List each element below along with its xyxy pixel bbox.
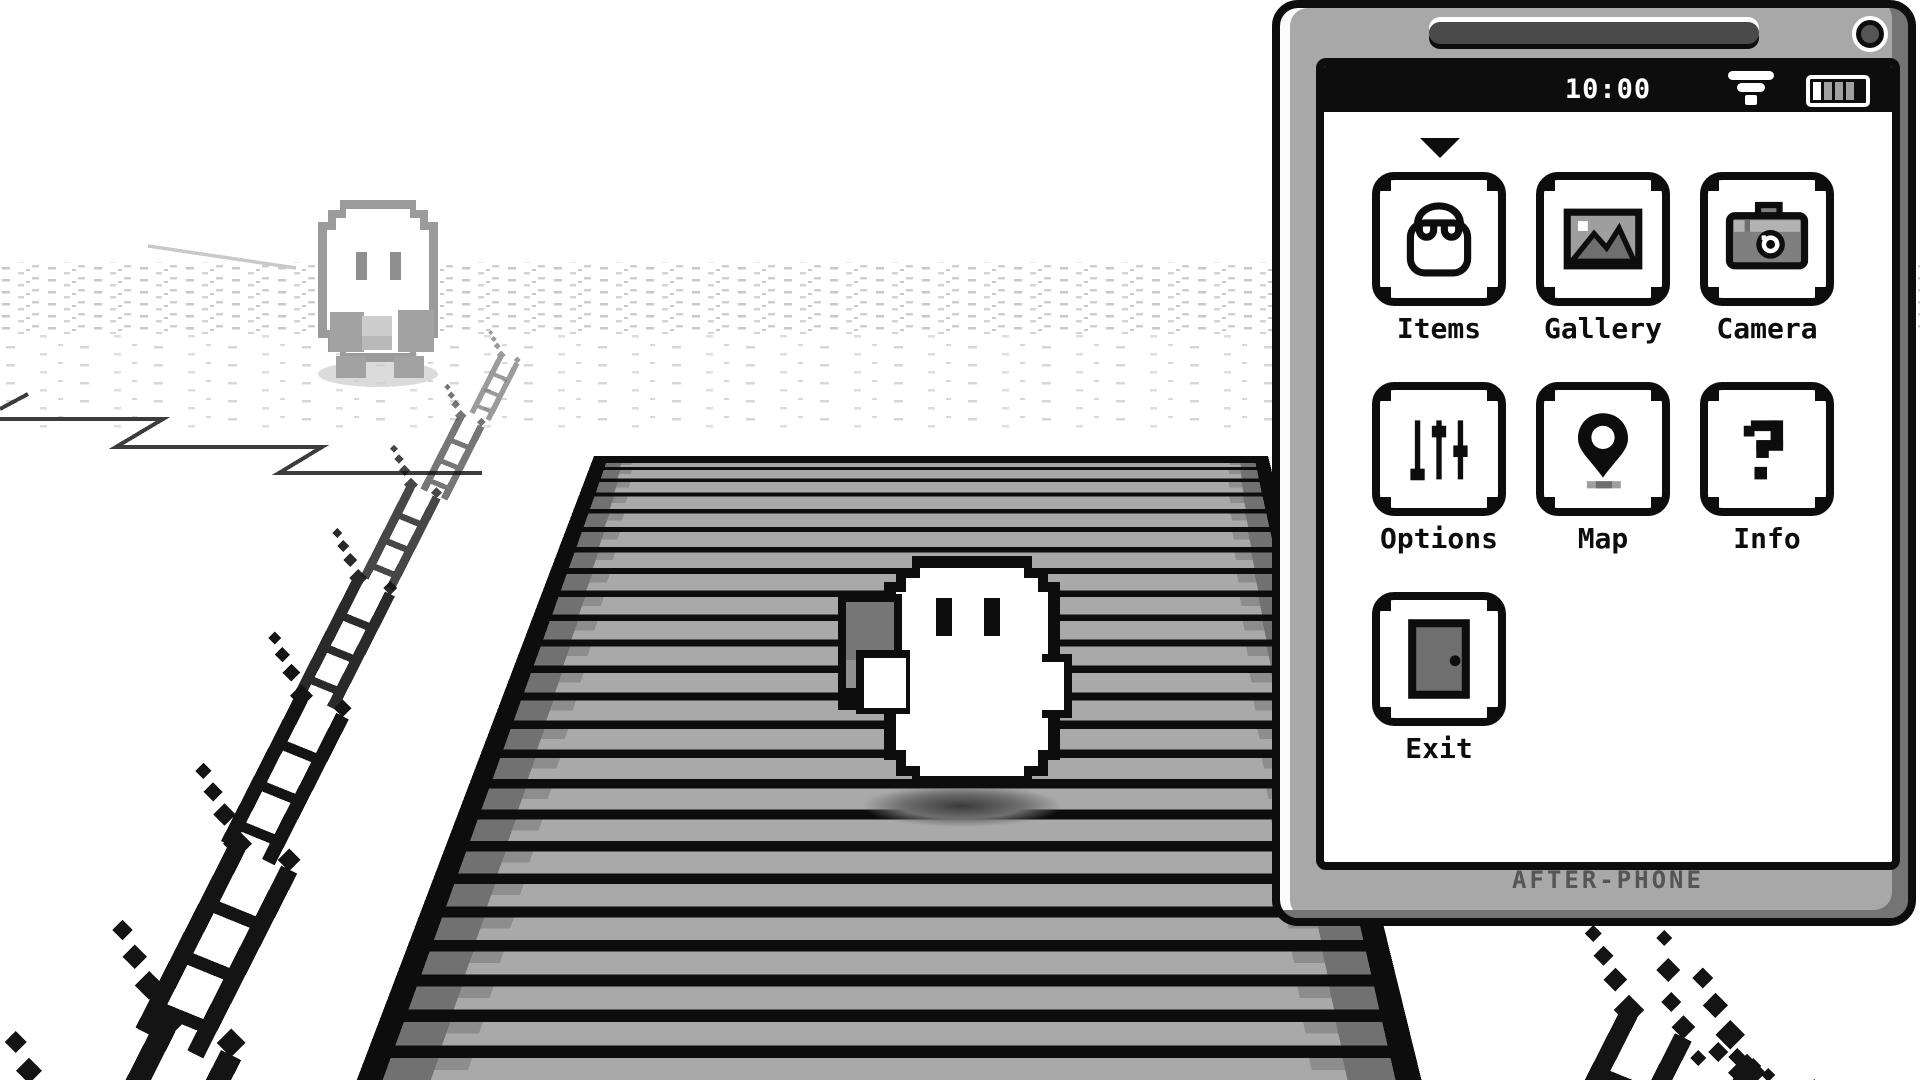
app-map[interactable]: Map	[1536, 382, 1670, 556]
app-label: Camera	[1700, 312, 1834, 346]
player-eye	[936, 598, 952, 636]
selection-cursor-icon	[1420, 138, 1460, 158]
camera-icon	[1708, 180, 1826, 298]
boardwalk	[356, 456, 1422, 1080]
game-viewport: 10:00	[0, 0, 1920, 1080]
app-label: Exit	[1372, 732, 1506, 766]
app-exit[interactable]: Exit	[1372, 592, 1506, 766]
app-label: Gallery	[1536, 312, 1670, 346]
after-phone-device: 10:00	[1272, 0, 1916, 926]
phone-screen: 10:00	[1316, 58, 1900, 870]
status-bar: 10:00	[1324, 66, 1892, 112]
door-icon	[1380, 600, 1498, 718]
app-info[interactable]: Info	[1700, 382, 1834, 556]
app-options[interactable]: Options	[1372, 382, 1506, 556]
battery-icon	[1806, 75, 1870, 107]
speaker-slot	[1429, 22, 1759, 44]
map-pin-icon	[1544, 390, 1662, 508]
device-brand-label: AFTER-PHONE	[1316, 866, 1900, 894]
front-camera-icon	[1856, 20, 1884, 48]
shopping-bag-icon	[1380, 180, 1498, 298]
question-mark-icon	[1708, 390, 1826, 508]
distant-ghost	[318, 200, 438, 387]
app-label: Map	[1536, 522, 1670, 556]
fence-right	[1530, 925, 1829, 1080]
player-eye	[984, 598, 1000, 636]
app-label: Options	[1372, 522, 1506, 556]
player-shadow	[862, 785, 1062, 827]
app-label: Info	[1700, 522, 1834, 556]
app-grid: Items Gallery	[1324, 172, 1900, 766]
sliders-icon	[1380, 390, 1498, 508]
app-camera[interactable]: Camera	[1700, 172, 1834, 346]
picture-icon	[1544, 180, 1662, 298]
wifi-icon	[1726, 71, 1776, 109]
app-items[interactable]: Items	[1372, 172, 1506, 346]
app-label: Items	[1372, 312, 1506, 346]
app-gallery[interactable]: Gallery	[1536, 172, 1670, 346]
